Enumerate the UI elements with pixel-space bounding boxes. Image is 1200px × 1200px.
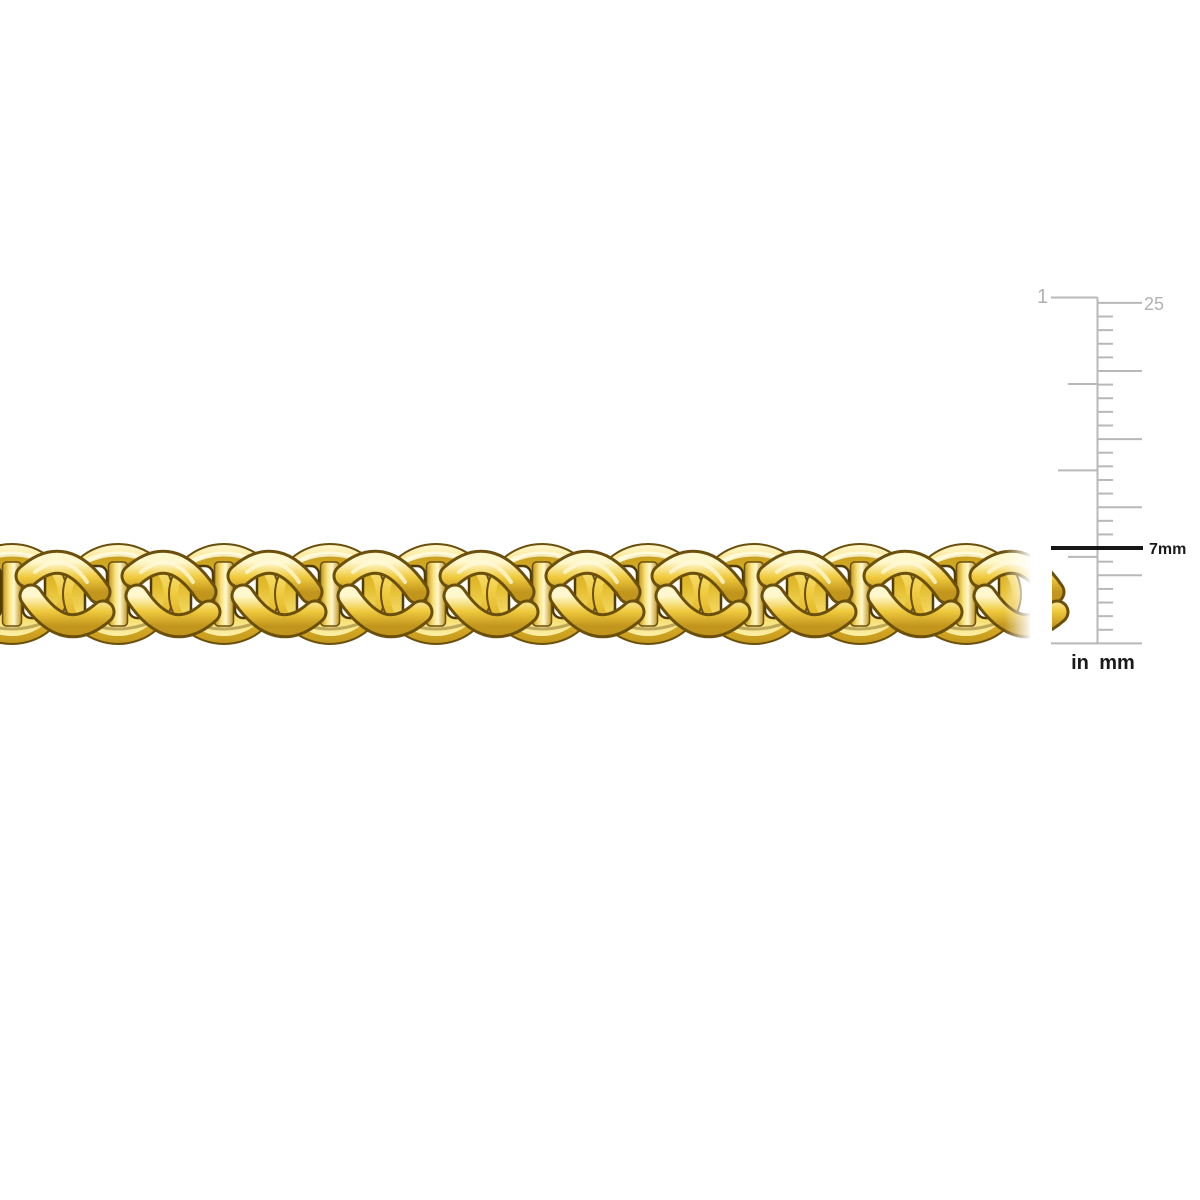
- chain-photo: [0, 544, 1057, 644]
- link-window-left: [0, 566, 1, 618]
- mm-unit-label: mm: [1099, 652, 1135, 674]
- inch-unit-label: in: [1071, 652, 1089, 674]
- product-image: 1 25 7mm in mm: [0, 0, 1200, 1200]
- chain-crop-mask: [1030, 525, 1052, 665]
- mm-top-label: 25: [1144, 294, 1164, 314]
- chain-crop-fade: [1004, 525, 1032, 665]
- size-marker-label: 7mm: [1149, 541, 1186, 558]
- scene: 1 25 7mm in mm: [0, 0, 1200, 1200]
- inch-top-label: 1: [1037, 286, 1048, 308]
